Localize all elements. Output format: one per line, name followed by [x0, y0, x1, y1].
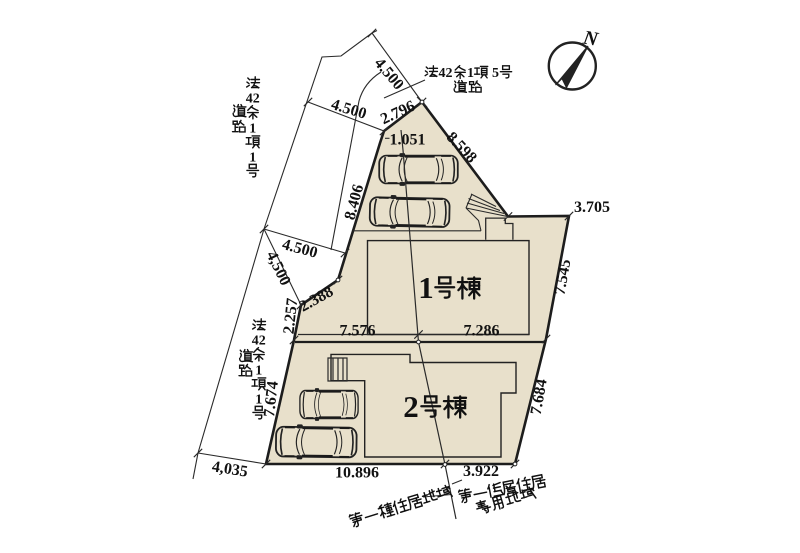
svg-text:1: 1 [249, 122, 256, 137]
svg-text:3.922: 3.922 [463, 463, 499, 480]
svg-text:7.286: 7.286 [464, 322, 500, 339]
svg-text:1: 1 [467, 66, 474, 81]
svg-text:1: 1 [255, 364, 262, 379]
svg-text:10.896: 10.896 [335, 464, 379, 481]
svg-text:2: 2 [403, 389, 419, 424]
svg-text:1.051: 1.051 [390, 131, 426, 148]
svg-text:1: 1 [418, 270, 434, 305]
svg-text:3.705: 3.705 [574, 199, 610, 216]
svg-text:5: 5 [492, 66, 499, 81]
svg-text:7.576: 7.576 [340, 322, 376, 339]
svg-text:1: 1 [249, 151, 256, 166]
svg-text:1: 1 [255, 393, 262, 408]
svg-text:42: 42 [439, 66, 453, 81]
svg-text:42: 42 [246, 92, 260, 107]
svg-text:42: 42 [252, 334, 266, 349]
